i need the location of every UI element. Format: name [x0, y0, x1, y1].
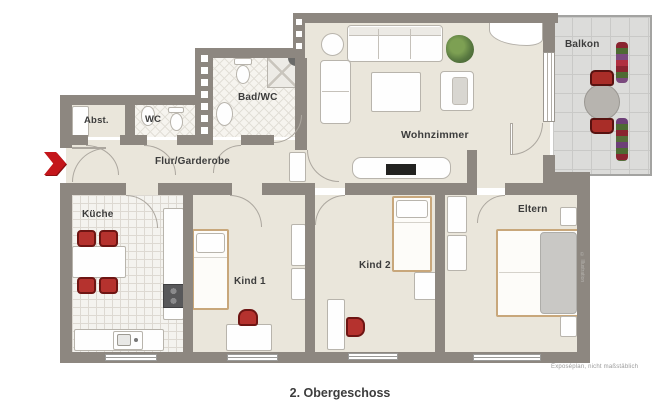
room-label-kueche: Küche: [82, 209, 114, 220]
wall: [435, 195, 445, 363]
room-label-kind2: Kind 2: [359, 260, 391, 271]
room-label-balkon: Balkon: [565, 39, 600, 50]
tv: [386, 164, 416, 175]
chaise-cushion-line: [322, 91, 349, 92]
window-kind2: [348, 353, 398, 360]
nightstand: [560, 316, 577, 337]
wall: [305, 195, 315, 363]
wardrobe-eltern: [447, 196, 467, 233]
disclaimer-text: Exposéplan, nicht maßstäblich: [551, 364, 638, 370]
balcony-table: [584, 84, 620, 120]
shaft-square: [201, 127, 208, 134]
room-label-wc: WC: [145, 114, 161, 125]
flower-box: [616, 118, 628, 161]
shaft-square: [201, 67, 208, 74]
balcony-chair: [590, 70, 614, 86]
toilet-tank: [234, 58, 252, 65]
wall: [60, 183, 72, 363]
kitchen-chair: [99, 230, 118, 247]
bed-kind2-pillow: [396, 200, 428, 218]
floorplan-canvas: Abst. WC Bad/WC Flur/Garderobe Wohnzimme…: [0, 0, 671, 420]
room-label-kind1: Kind 1: [234, 276, 266, 287]
stove: [163, 284, 184, 308]
wall: [158, 183, 232, 195]
kitchen-chair: [99, 277, 118, 294]
wall: [345, 183, 467, 195]
window-eltern: [473, 354, 541, 361]
wall: [120, 135, 147, 145]
wc-toilet-bowl: [170, 113, 183, 131]
sofa-cushion-line: [410, 29, 411, 59]
shaft-square: [201, 55, 208, 62]
room-label-abst: Abst.: [84, 115, 109, 126]
desk-kind1: [226, 324, 272, 351]
flower-box: [616, 42, 628, 83]
wall: [195, 48, 305, 58]
wall: [293, 13, 558, 23]
wardrobe-kind1: [291, 224, 306, 266]
balcony-chair: [590, 118, 614, 134]
door-leaf-balkon: [510, 123, 513, 155]
wardrobe-eltern: [447, 235, 467, 271]
bed-eltern-mattress-line: [499, 272, 541, 273]
dresser-kind1: [291, 268, 306, 300]
shaft-square: [296, 43, 302, 49]
coffee-table: [371, 72, 421, 112]
shaft-square: [201, 115, 208, 122]
wall: [60, 183, 126, 195]
sofa-chaise: [320, 60, 351, 124]
wall: [177, 135, 197, 145]
desk-kind2: [327, 299, 345, 350]
kitchen-sink-basin: [117, 334, 131, 346]
wall: [60, 95, 197, 105]
room-label-wohnzimmer: Wohnzimmer: [401, 129, 469, 141]
bed-kind2-blanket-line: [394, 222, 430, 223]
wall: [241, 135, 274, 145]
window-kueche: [105, 354, 157, 361]
entrance-arrow-icon: [44, 152, 66, 175]
watermark-text: © Illustration: [579, 252, 585, 332]
nightstand: [560, 207, 577, 226]
room-label-eltern: Eltern: [518, 204, 548, 215]
kitchen-chair: [77, 230, 96, 247]
room-label-flur: Flur/Garderobe: [155, 156, 230, 167]
wall: [543, 13, 555, 53]
shaft-square: [201, 91, 208, 98]
shaft-square: [201, 79, 208, 86]
window-balkon-door: [543, 52, 555, 122]
wall: [467, 150, 477, 195]
shaft-square: [201, 103, 208, 110]
wall: [60, 135, 88, 145]
plant: [446, 35, 474, 63]
kitchen-chair: [77, 277, 96, 294]
armchair-cushion: [452, 77, 468, 105]
desk-chair-kind1: [238, 309, 258, 326]
bed-kind1-blanket-line: [194, 257, 227, 258]
dining-table: [72, 246, 126, 278]
desk-chair-kind2: [346, 317, 365, 337]
shaft-square: [296, 19, 302, 25]
toilet-bowl: [236, 65, 250, 84]
bed-eltern-blanket: [540, 232, 577, 314]
wall: [295, 58, 307, 150]
wall: [262, 183, 315, 195]
side-table-round: [321, 33, 344, 56]
room-label-bad-wc: Bad/WC: [238, 92, 278, 103]
kitchen-faucet: [134, 338, 138, 342]
bath-sink: [216, 102, 233, 126]
window-kind1: [227, 354, 278, 361]
shaft-square: [296, 31, 302, 37]
sofa-backrest: [349, 27, 441, 36]
wall: [183, 195, 193, 363]
sofa-cushion-line: [378, 29, 379, 59]
floor-caption: 2. Obergeschoss: [250, 386, 430, 400]
bed-kind1-pillow: [196, 233, 225, 253]
flur-wardrobe: [289, 152, 306, 182]
